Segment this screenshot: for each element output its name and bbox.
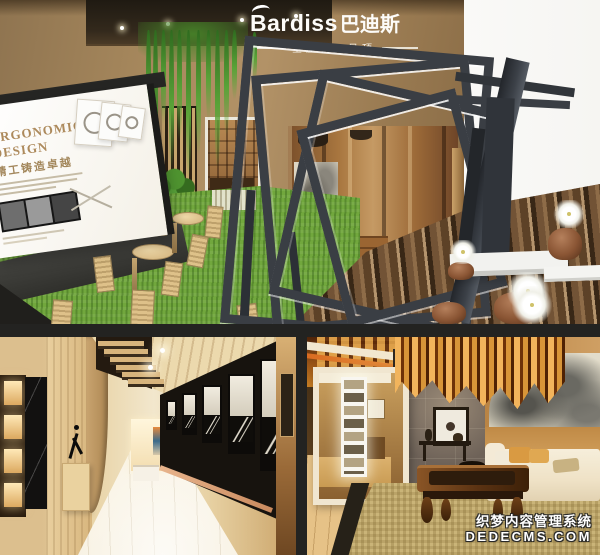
sculpture-pedestal xyxy=(62,463,90,511)
clay-pot xyxy=(432,302,466,324)
corridor-photo xyxy=(0,337,296,555)
shelf-lightbox xyxy=(4,449,22,473)
poster-photo-strip xyxy=(0,190,81,232)
folding-chair xyxy=(130,289,155,324)
white-plinth xyxy=(544,265,600,282)
hanging-vine xyxy=(196,30,201,155)
product-image xyxy=(118,105,146,140)
panel-artwork-lower xyxy=(204,416,220,433)
lightbox-photos xyxy=(344,380,364,474)
hanging-vine xyxy=(224,30,229,135)
clay-pot xyxy=(548,228,582,260)
lightbox-strip xyxy=(341,377,367,477)
stair-step xyxy=(122,372,160,377)
panel-artwork xyxy=(184,395,195,415)
sculpture-head xyxy=(74,425,79,430)
panel-artwork-lower xyxy=(168,416,175,424)
table-leg xyxy=(421,497,433,523)
flower-center xyxy=(461,250,465,254)
panel-artwork xyxy=(168,402,175,416)
stair-step xyxy=(128,379,164,384)
table-apron xyxy=(423,491,523,499)
spotlight xyxy=(120,26,124,30)
hanging-vine xyxy=(232,30,237,100)
cafe-table xyxy=(172,212,204,225)
lit-display-shelves xyxy=(0,375,26,517)
hanging-vine xyxy=(186,30,191,180)
shelf-lightbox xyxy=(4,381,22,405)
watermark-cn-text: 织梦内容管理系统 xyxy=(466,514,592,530)
photo-collage: Bardiss 巴迪斯 全屋精工吊顶 xyxy=(0,0,600,555)
flower-center xyxy=(530,303,534,307)
watermark: 织梦内容管理系统 DEDECMS.COM xyxy=(466,514,592,544)
table-inset-panel xyxy=(429,471,515,485)
showroom-photo: Bardiss 巴迪斯 全屋精工吊顶 xyxy=(0,0,600,324)
picture-motif xyxy=(446,422,455,431)
poster-board: ERGONOMIC DESIGN 精工铸造卓越 xyxy=(0,83,175,258)
shelf-lightbox xyxy=(4,483,22,507)
table-leg xyxy=(441,499,451,521)
panel-artwork-lower xyxy=(184,416,195,428)
vase xyxy=(425,429,432,441)
hanging-vine xyxy=(177,30,182,140)
white-cabinet xyxy=(133,465,159,481)
near-wall-edge xyxy=(276,337,296,555)
decor-object xyxy=(453,433,463,441)
white-flower xyxy=(553,200,585,228)
stair-step xyxy=(104,349,148,354)
marble-column xyxy=(25,377,47,509)
product-ring xyxy=(124,115,139,130)
hanging-vine xyxy=(215,30,220,168)
watermark-domain-text: DEDECMS.COM xyxy=(466,530,592,545)
clay-pot xyxy=(448,262,474,280)
gallery-panel xyxy=(182,393,197,435)
cafe-table xyxy=(132,244,174,260)
stair-step xyxy=(98,341,144,346)
gallery-panel xyxy=(202,385,222,443)
wall-art xyxy=(280,373,294,437)
white-flower xyxy=(512,286,552,324)
sofa-cushion xyxy=(529,449,549,463)
shelf-lightbox xyxy=(4,415,22,439)
white-flower xyxy=(449,240,477,264)
photo-cell xyxy=(0,201,27,230)
recessed-light xyxy=(160,348,165,353)
panel-artwork xyxy=(230,376,253,416)
reflected-frame xyxy=(367,399,385,419)
gallery-panel xyxy=(228,374,255,454)
folding-chair xyxy=(51,299,73,324)
panel-artwork-lower xyxy=(230,417,253,441)
flower-center xyxy=(567,212,571,216)
recessed-light xyxy=(148,365,153,370)
sofa-cushion xyxy=(552,458,579,474)
end-doorway xyxy=(131,419,164,471)
gallery-panel xyxy=(166,400,177,430)
stair-step xyxy=(110,357,152,362)
folding-chair xyxy=(204,205,223,238)
logo-cjk-text: 巴迪斯 xyxy=(340,8,400,37)
photo-cell xyxy=(25,197,53,226)
table-top xyxy=(132,244,174,260)
sculpture-beam xyxy=(481,98,514,255)
hanging-vine xyxy=(206,30,211,120)
panel-artwork xyxy=(204,387,220,415)
hanging-vine xyxy=(169,30,174,170)
